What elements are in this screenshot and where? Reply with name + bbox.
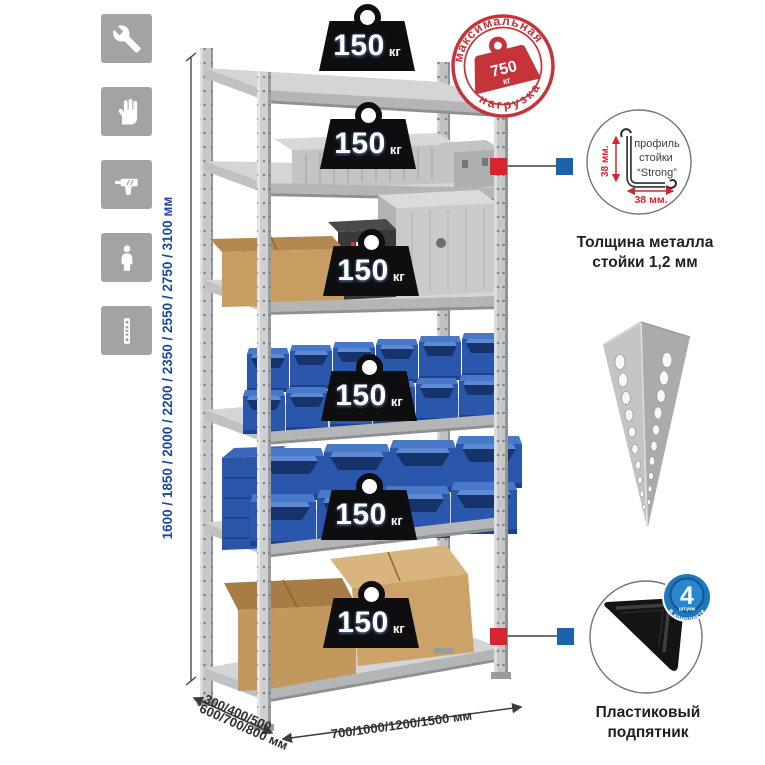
shelf-load-badge-4: 150кг <box>321 354 417 421</box>
product-infographic: 1600 / 1850 / 2000 / 2200 / 2350 / 2550 … <box>0 0 765 765</box>
weight-ring-icon <box>358 229 385 256</box>
caption-line: Толщина металла <box>570 233 720 253</box>
load-value: 150 <box>337 606 389 640</box>
weight-ring-icon <box>354 4 381 31</box>
caption-line: стойки 1,2 мм <box>570 253 720 273</box>
profile-label-3: “Strong” <box>637 167 677 179</box>
load-value: 150 <box>335 498 387 532</box>
corner-post-image <box>603 322 690 527</box>
foot-callout-connector <box>490 628 574 645</box>
weight-ring-icon <box>355 102 382 129</box>
caption-line: Пластиковый <box>573 703 723 723</box>
profile-height-dim: 38 мм. <box>600 145 611 177</box>
load-unit: кг <box>389 44 401 59</box>
weight-ring-icon <box>356 354 383 381</box>
quantity-unit: штуки <box>679 607 696 613</box>
height-dimension-label: 1600 / 1850 / 2000 / 2200 / 2350 / 2550 … <box>160 197 175 540</box>
weight-ring-icon <box>356 473 383 500</box>
caption-line: подпятник <box>573 723 723 743</box>
connector-blue-square <box>557 628 574 645</box>
shelf-load-badge-1: 150кг <box>319 4 415 71</box>
plastic-foot-caption: Пластиковый подпятник <box>573 703 723 743</box>
connector-red-square <box>490 158 507 175</box>
profile-label-1: профиль <box>634 138 680 150</box>
shelf-load-badge-5: 150кг <box>321 473 417 540</box>
metal-thickness-caption: Толщина металла стойки 1,2 мм <box>570 233 720 273</box>
profile-width-dim: 38 мм. <box>634 194 667 206</box>
height-dimension: 1600 / 1850 / 2000 / 2200 / 2350 / 2550 … <box>160 53 196 685</box>
load-unit: кг <box>391 513 403 528</box>
profile-callout-connector <box>490 158 573 175</box>
load-value: 150 <box>334 127 386 161</box>
connector-blue-square <box>556 158 573 175</box>
load-unit: кг <box>393 269 405 284</box>
profile-label-2: стойки <box>639 152 673 164</box>
profile-detail-circle: 38 мм. 38 мм. профиль стойки “Strong” <box>587 110 691 214</box>
load-unit: кг <box>390 142 402 157</box>
load-value: 150 <box>337 254 389 288</box>
weight-ring-icon <box>358 581 385 608</box>
load-unit: кг <box>391 394 403 409</box>
shelf-load-badge-3: 150кг <box>323 229 419 296</box>
load-value: 150 <box>333 29 385 63</box>
shelf-load-badge-6: 150кг <box>323 581 419 648</box>
width-dimension: 700/1000/1200/1500 мм <box>283 707 521 741</box>
width-label: 700/1000/1200/1500 мм <box>330 708 473 742</box>
foot-detail-circle: 4 штуки в комплекте <box>590 572 712 693</box>
shelf-load-badge-2: 150кг <box>320 102 416 169</box>
load-value: 150 <box>335 379 387 413</box>
connector-red-square <box>490 628 507 645</box>
load-unit: кг <box>393 621 405 636</box>
